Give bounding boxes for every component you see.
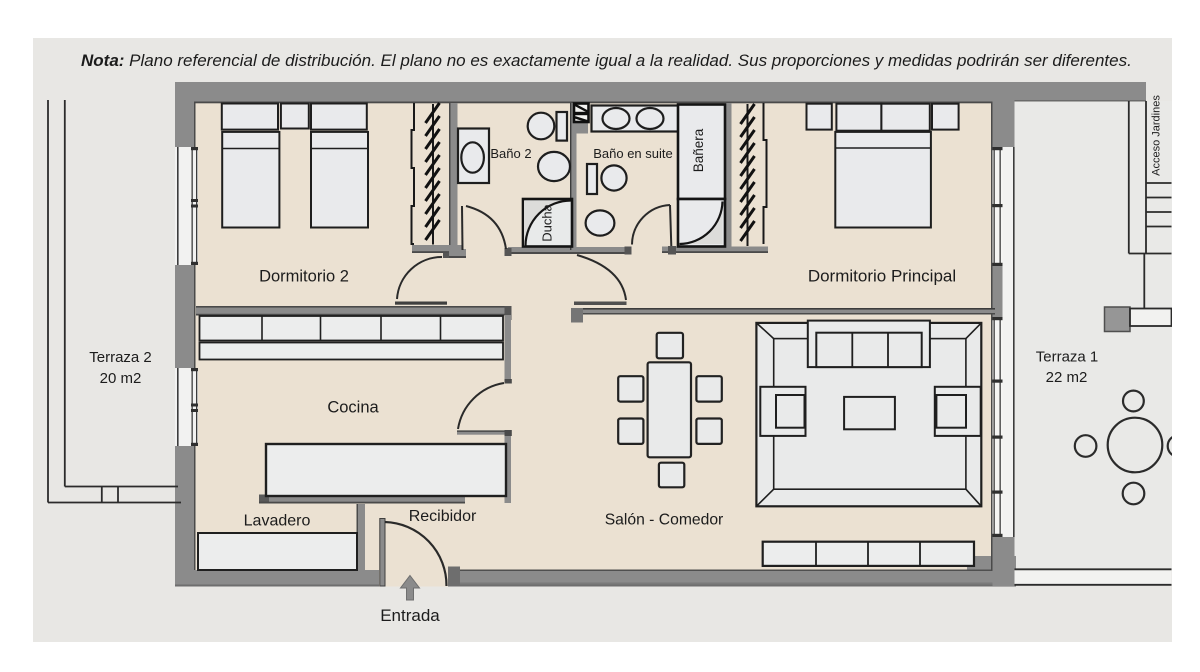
svg-text:20 m2: 20 m2 xyxy=(100,370,142,387)
svg-text:Acceso Jardines: Acceso Jardines xyxy=(1151,95,1163,176)
svg-text:Ducha: Ducha xyxy=(540,203,555,241)
svg-text:Dormitorio 2: Dormitorio 2 xyxy=(259,268,349,286)
svg-text:Baño en suite: Baño en suite xyxy=(593,146,673,161)
svg-text:Cocina: Cocina xyxy=(327,399,379,417)
svg-text:Recibidor: Recibidor xyxy=(409,508,477,525)
svg-text:Entrada: Entrada xyxy=(380,606,440,625)
svg-text:Bañera: Bañera xyxy=(691,128,706,172)
svg-text:Nota: Plano referencial de dis: Nota: Plano referencial de distribución.… xyxy=(81,51,1132,70)
svg-text:Lavadero: Lavadero xyxy=(244,513,311,530)
svg-text:Salón - Comedor: Salón - Comedor xyxy=(605,512,724,529)
svg-text:22 m2: 22 m2 xyxy=(1046,369,1088,386)
svg-text:Terraza 2: Terraza 2 xyxy=(89,349,152,366)
svg-text:Dormitorio Principal: Dormitorio Principal xyxy=(808,267,956,286)
svg-text:Baño 2: Baño 2 xyxy=(490,146,531,161)
svg-text:Terraza 1: Terraza 1 xyxy=(1036,349,1099,366)
